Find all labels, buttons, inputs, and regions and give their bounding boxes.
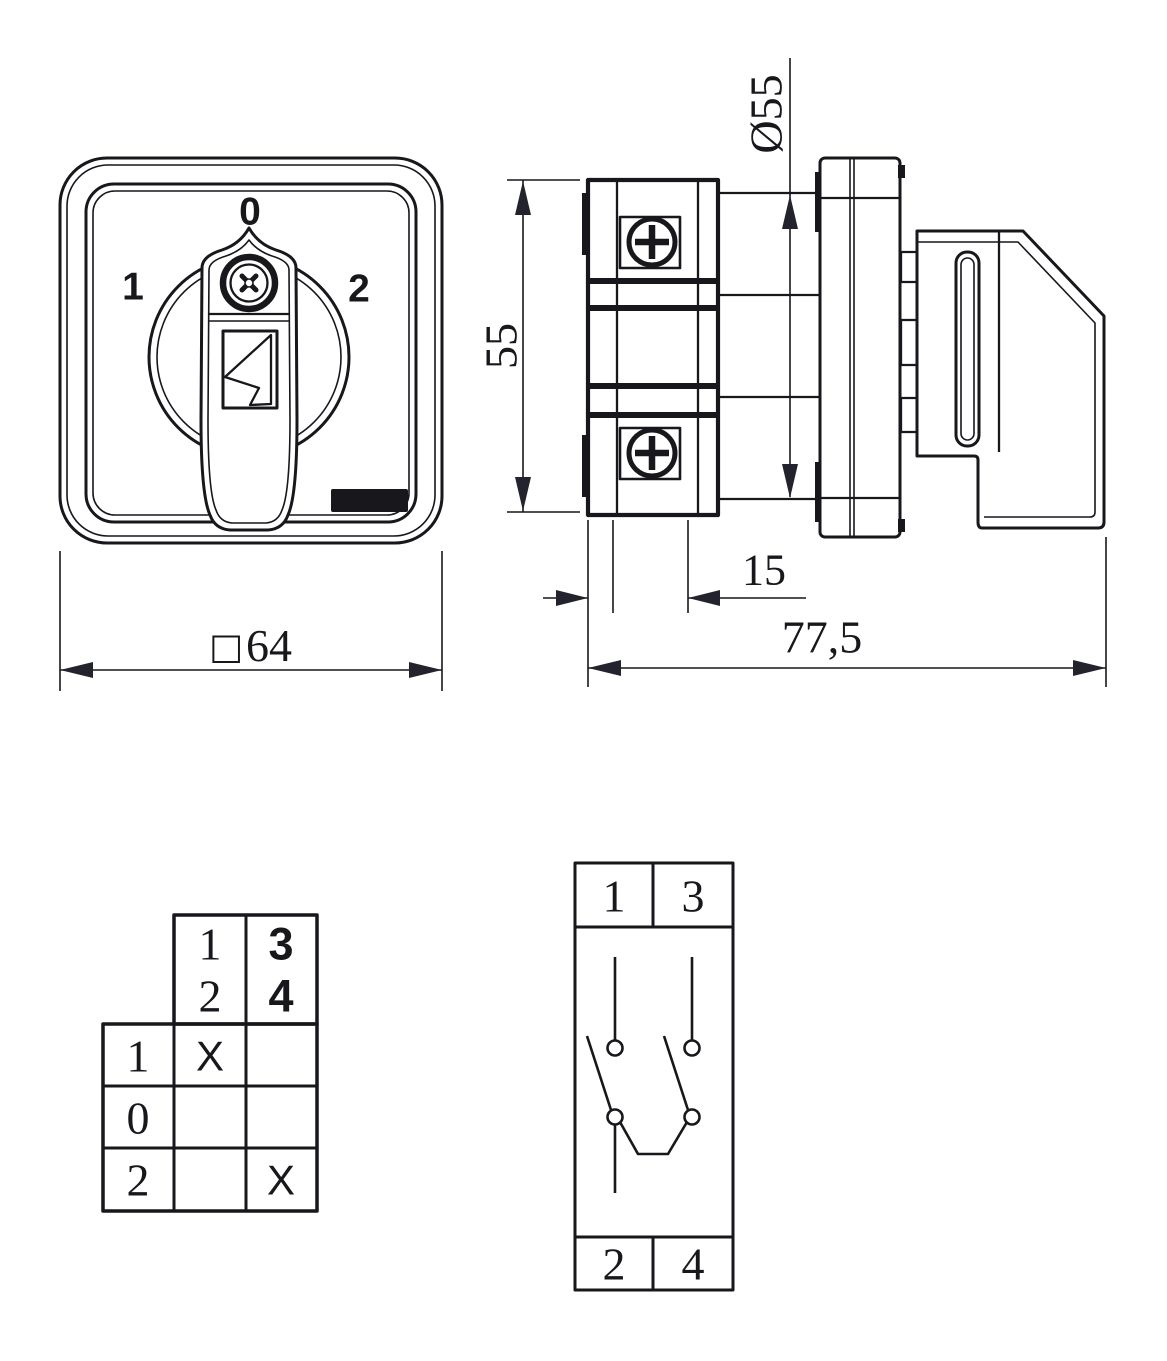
module-depth-dimension: 15 [543, 520, 806, 687]
arrowhead-down [515, 477, 531, 511]
arrowhead-left [588, 660, 621, 676]
front-position-label-2: 2 [348, 268, 370, 311]
square-symbol: □ [209, 627, 243, 668]
front-view: 1 0 2 [60, 158, 442, 543]
table-cell-pos2-c34: X [267, 1157, 295, 1204]
terminal-label-3: 3 [682, 871, 705, 922]
contact-point [685, 1041, 700, 1056]
contact-bridge [620, 1122, 687, 1154]
mounting-plate [815, 158, 905, 537]
adapter-tab [901, 398, 917, 432]
arrowhead-left [688, 590, 720, 606]
plate-tab [898, 519, 905, 532]
terminal-label-4: 4 [682, 1239, 705, 1290]
front-width-dimension: □ 64 [60, 551, 442, 691]
side-view [582, 158, 1104, 537]
front-width-value: 64 [246, 620, 292, 671]
circuit-diagram: 1 3 2 4 [575, 863, 733, 1290]
knob-side-outline [917, 231, 1104, 528]
front-position-label-1: 1 [122, 266, 144, 309]
mounting-plate-body [820, 158, 900, 537]
contact-table: 1 2 3 4 1 0 2 X X [103, 915, 317, 1211]
side-height-dimension: 55 [476, 180, 581, 512]
total-depth-value: 77,5 [782, 612, 863, 663]
side-height-value: 55 [476, 323, 527, 369]
table-header-contact-3: 3 [268, 919, 293, 970]
front-position-label-0: 0 [239, 191, 261, 234]
table-row-label: 0 [127, 1093, 150, 1144]
cam-switch-drawing: 1 0 2 □ 64 [0, 0, 1167, 1361]
shaft-diameter-label: Ø55 [741, 74, 792, 153]
plate-tab [815, 172, 821, 232]
table-row-label: 1 [127, 1031, 150, 1082]
terminal-label-2: 2 [603, 1239, 626, 1290]
arrowhead-right [409, 662, 442, 678]
adapter-tab [901, 252, 917, 282]
block-left-tab [582, 435, 589, 497]
module-depth-value: 15 [742, 546, 786, 595]
contact-block [582, 180, 718, 515]
arrowhead-down [782, 464, 798, 498]
table-cell-pos1-c12: X [196, 1033, 224, 1080]
arrowhead-right [1073, 660, 1106, 676]
plate-tab [898, 165, 905, 178]
table-header-contact-4: 4 [268, 971, 293, 1022]
arrowhead-up [515, 181, 531, 215]
front-screw [223, 257, 275, 309]
knob-grip-side [956, 252, 979, 446]
arrowhead-up [782, 195, 798, 229]
knob-side-profile [917, 231, 1104, 528]
technical-drawing-page: 1 0 2 □ 64 [0, 0, 1167, 1361]
table-row-label: 2 [127, 1155, 150, 1206]
total-depth-dimension: 77,5 [588, 537, 1106, 687]
table-header-contact-1: 1 [199, 919, 222, 970]
brand-logo [331, 489, 408, 512]
adapter-tab [901, 320, 917, 365]
block-left-tab [582, 193, 589, 255]
arrowhead-right [556, 590, 588, 606]
screw-center-dot [245, 279, 253, 287]
plate-tab [815, 462, 821, 522]
switch-contacts [587, 957, 700, 1193]
table-header-contact-2: 2 [199, 971, 222, 1022]
contact-point [608, 1041, 623, 1056]
shaft-diameter-dimension: Ø55 [741, 58, 799, 498]
terminal-label-1: 1 [603, 871, 626, 922]
arrowhead-left [60, 662, 93, 678]
